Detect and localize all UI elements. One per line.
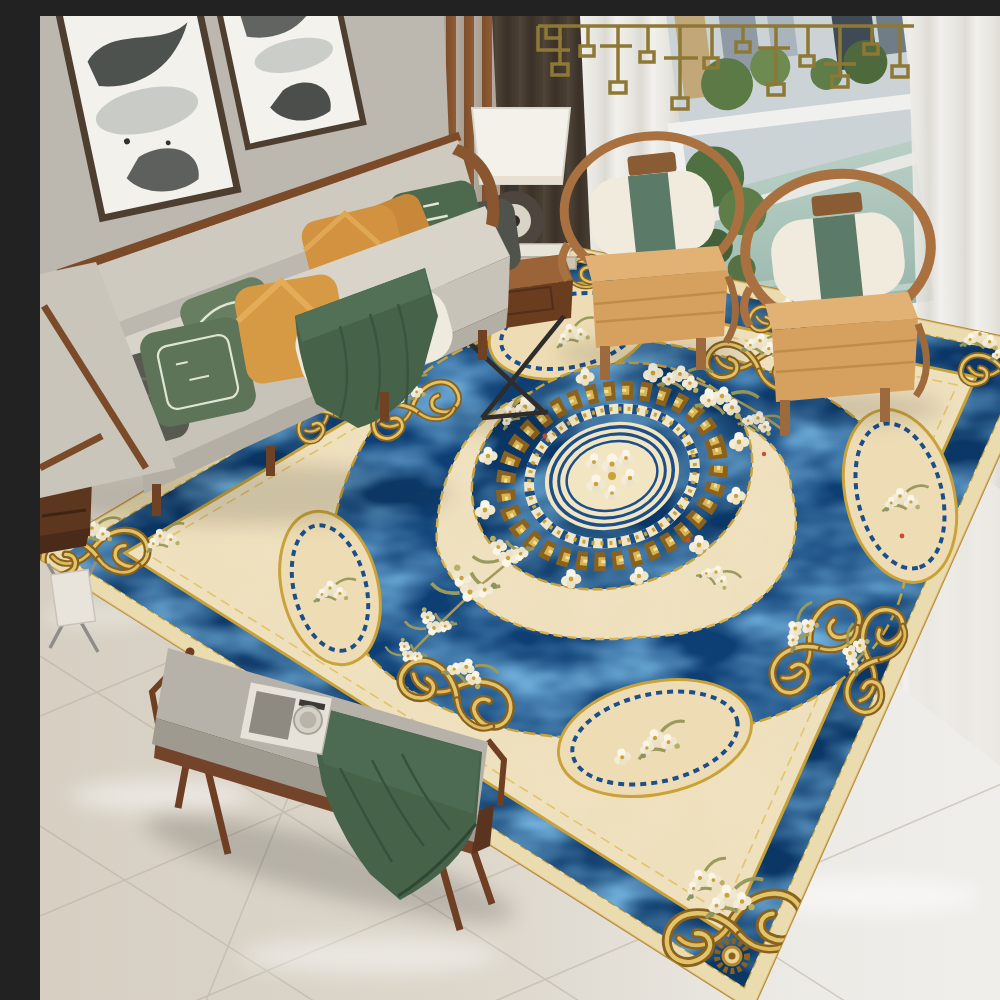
teacup <box>294 706 322 734</box>
chair-pillow <box>586 168 718 261</box>
chair-cushion <box>592 270 728 348</box>
scene-canvas <box>40 16 1000 1000</box>
chair-cushion <box>772 318 918 402</box>
living-room-photo: Living room photo: ornate blue and gold … <box>40 16 1000 1000</box>
chair-pillow <box>768 209 908 306</box>
